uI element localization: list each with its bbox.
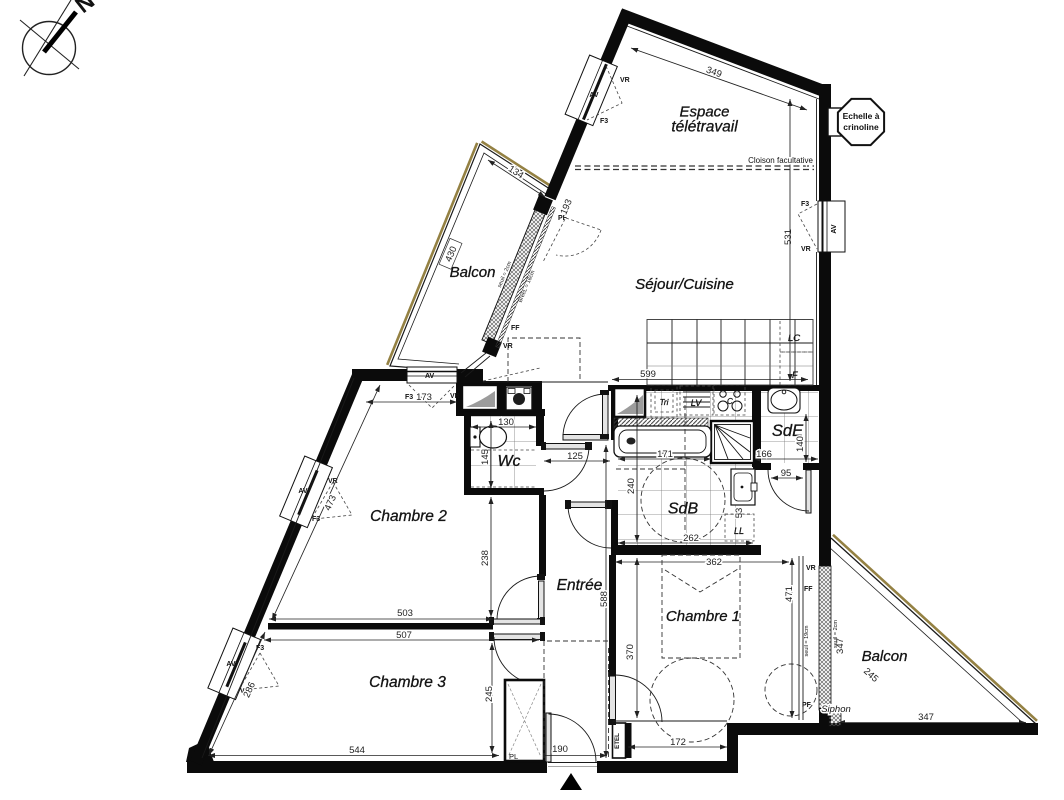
svg-text:370: 370 [625,644,636,660]
svg-text:Séjour/Cuisine: Séjour/Cuisine [635,276,734,293]
svg-text:362: 362 [706,557,722,568]
svg-text:Balcon: Balcon [450,264,496,281]
svg-text:F3: F3 [600,118,608,125]
svg-text:ETEL: ETEL [614,733,621,749]
svg-text:F3: F3 [405,394,413,401]
svg-text:Tri: Tri [660,398,669,407]
svg-text:599: 599 [640,369,656,380]
svg-text:F3: F3 [801,201,809,208]
svg-text:AV: AV [589,92,599,99]
svg-text:VR: VR [806,565,816,572]
svg-text:FF: FF [511,325,520,332]
svg-text:AV: AV [226,661,236,668]
svg-text:145: 145 [480,449,491,465]
svg-text:245: 245 [484,686,495,702]
svg-text:SdB: SdB [668,501,699,518]
svg-text:PL: PL [509,752,518,761]
svg-text:53: 53 [734,508,745,519]
svg-text:240: 240 [626,478,637,494]
svg-text:172: 172 [670,737,686,748]
svg-text:Balcon: Balcon [862,648,908,665]
svg-text:seuil = 2cm: seuil = 2cm [833,620,839,648]
svg-text:LL: LL [734,526,744,536]
svg-text:507: 507 [396,630,412,641]
svg-text:Chambre 2: Chambre 2 [370,508,447,525]
svg-text:140: 140 [795,436,806,452]
svg-text:seuil = 19cm: seuil = 19cm [804,625,810,656]
svg-text:LV: LV [691,398,703,408]
svg-text:Entrée: Entrée [557,577,603,594]
svg-text:166: 166 [756,449,772,460]
svg-text:190: 190 [552,744,568,755]
svg-text:VR: VR [801,246,811,253]
svg-text:95: 95 [781,468,792,479]
svg-text:Echelle à: Echelle à [843,111,880,121]
svg-text:Chambre 1: Chambre 1 [666,608,740,625]
svg-text:AV: AV [298,488,308,495]
svg-text:471: 471 [784,586,795,602]
svg-text:Wc: Wc [497,453,520,470]
svg-text:262: 262 [683,533,699,544]
svg-text:VR: VR [620,77,630,84]
svg-text:F: F [792,370,798,380]
svg-text:130: 130 [498,417,514,428]
svg-text:531: 531 [783,229,794,245]
svg-text:Cloison facultative: Cloison facultative [748,156,813,165]
svg-text:125: 125 [567,451,583,462]
svg-text:Chambre 3: Chambre 3 [369,674,446,691]
svg-text:238: 238 [480,550,491,566]
svg-text:171: 171 [657,449,673,460]
svg-text:503: 503 [397,608,413,619]
svg-text:544: 544 [349,745,365,756]
svg-text:347: 347 [918,712,934,723]
svg-text:AV: AV [425,373,435,380]
svg-text:FF: FF [804,586,813,593]
svg-text:173: 173 [416,392,432,403]
svg-text:AV: AV [831,224,838,234]
svg-text:télétravail: télétravail [671,119,738,136]
svg-text:Siphon: Siphon [821,704,851,715]
svg-text:crinoline: crinoline [843,122,879,132]
svg-text:VR: VR [450,393,460,400]
svg-text:VR: VR [328,478,338,485]
